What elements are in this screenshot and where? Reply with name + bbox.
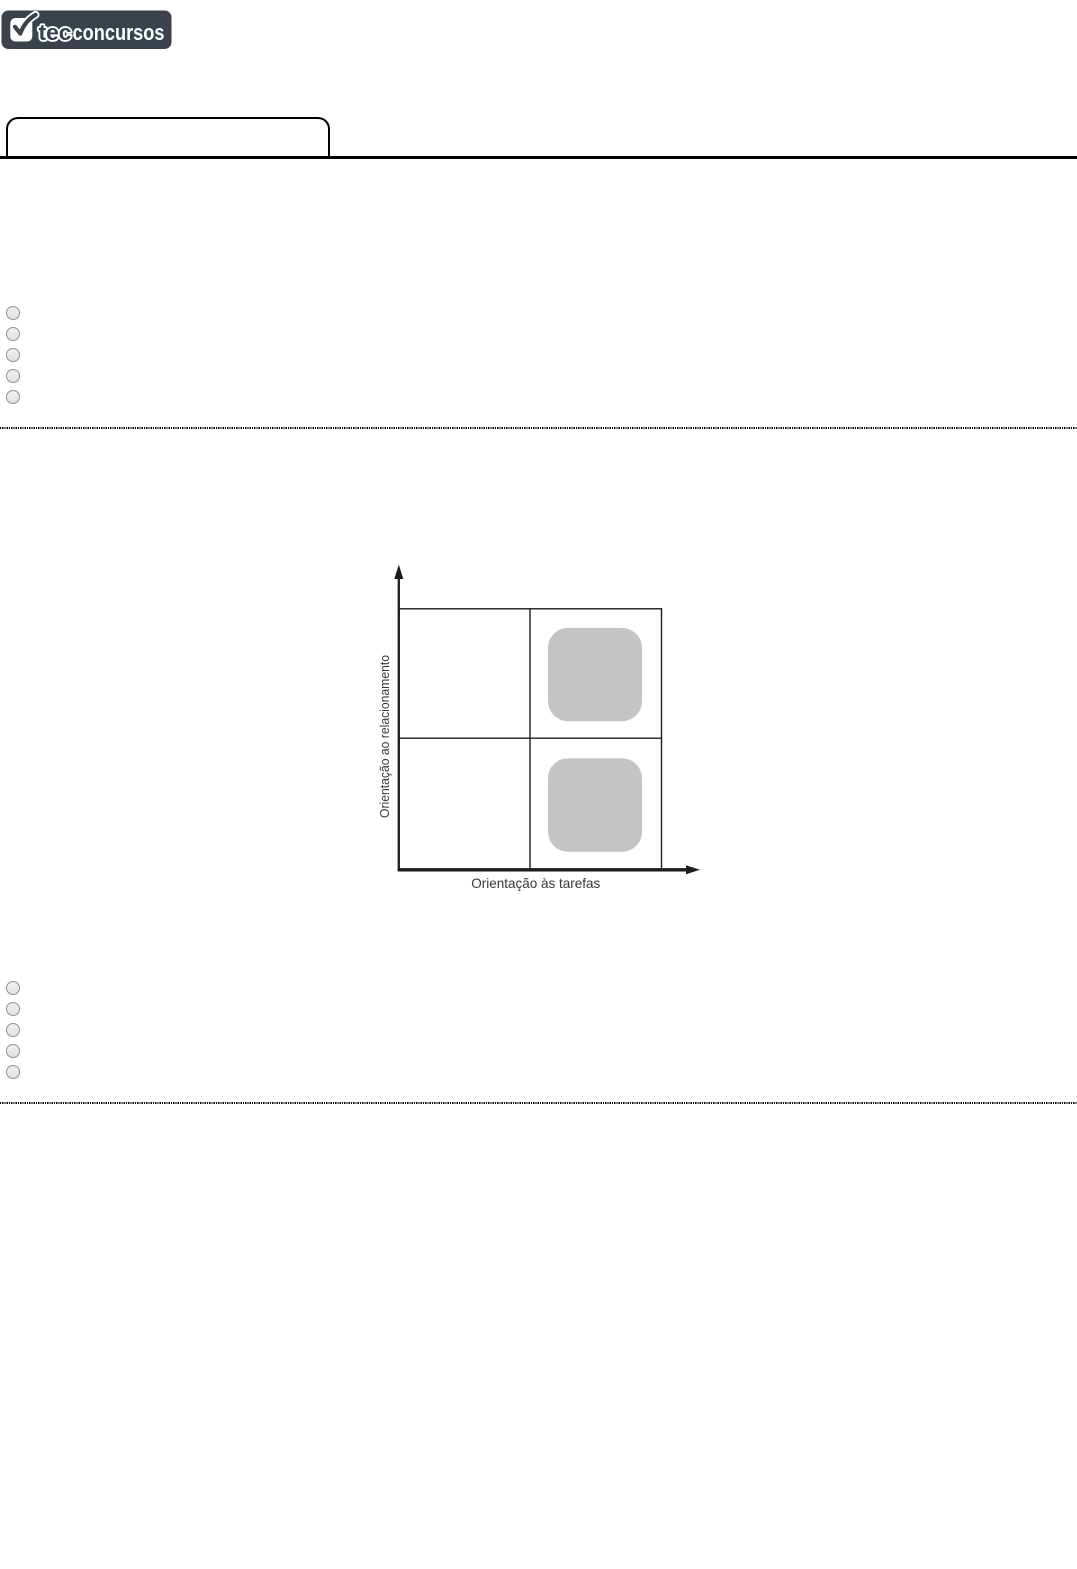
svg-text:Orientação às tarefas: Orientação às tarefas (471, 875, 600, 891)
svg-text:Orientação ao relacionamento: Orientação ao relacionamento (378, 655, 392, 818)
svg-text:tec: tec (39, 20, 72, 45)
svg-text:concursos: concursos (73, 20, 165, 45)
